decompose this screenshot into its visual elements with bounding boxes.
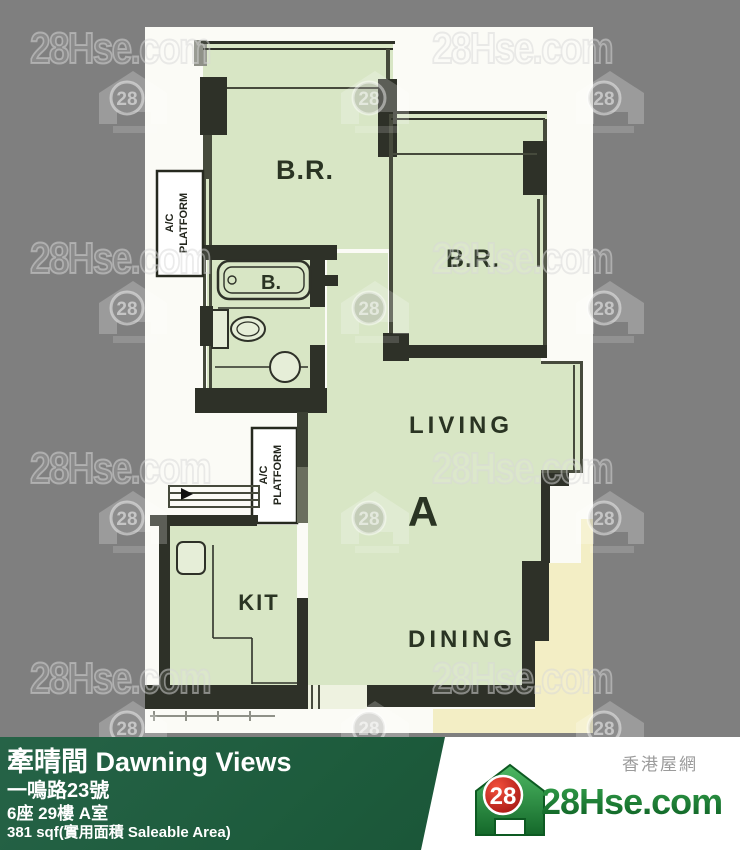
br2-right-window — [544, 199, 547, 267]
svg-text:28: 28 — [593, 719, 614, 737]
svg-text:28: 28 — [116, 89, 137, 110]
kitchen-sink — [177, 542, 205, 574]
unit-letter-label: A — [408, 488, 438, 535]
br2-interior-line — [393, 153, 537, 155]
br2-right-wall-block — [523, 141, 547, 195]
bath-right-wall-lower — [310, 345, 325, 390]
saleable-area: 381 sqf(實用面積 Saleable Area) — [7, 821, 231, 842]
ac-platform-2-label-line1: A/C — [258, 465, 270, 484]
brand-badge-number: 28 — [490, 783, 517, 810]
svg-text:28: 28 — [116, 509, 137, 530]
toilet-tank — [212, 310, 228, 348]
bedroom2-label: B.R. — [446, 245, 500, 273]
svg-text:28: 28 — [116, 719, 137, 737]
bath-left-window — [209, 260, 212, 306]
bath-left-window — [203, 346, 206, 388]
entrance-gap — [308, 685, 367, 709]
brand-block: 香港屋網 28 28Hse.com — [455, 737, 740, 850]
svg-text:28: 28 — [116, 299, 137, 320]
svg-text:28: 28 — [593, 89, 614, 110]
dining-right-wall — [522, 561, 549, 641]
entrance-door-line — [318, 685, 320, 709]
entrance-door-line — [311, 685, 313, 709]
wash-basin — [270, 352, 300, 382]
br2-left-wall — [389, 111, 393, 353]
bay-window-area — [541, 361, 583, 473]
living-label: LIVING — [409, 412, 513, 439]
brand-site-name: 28Hse.com — [541, 781, 722, 823]
bedroom1-label: B.R. — [276, 155, 334, 185]
living-right-wall — [541, 473, 550, 563]
kitchen-top-wall — [150, 517, 257, 526]
hall-wall-hatch — [297, 412, 308, 467]
br1-window-line — [201, 41, 395, 44]
ac-platform-1-label-line1: A/C — [164, 213, 176, 232]
brand-chinese-name: 香港屋網 — [622, 750, 698, 775]
br-divider-wall — [386, 49, 390, 81]
bottom-wall-right — [367, 685, 535, 707]
br2-right-window — [537, 199, 540, 267]
br1-window-line — [203, 48, 393, 50]
bedroom1-area — [203, 43, 393, 249]
hall-wall-hatch-light — [297, 467, 308, 523]
floorplan-page: { "watermark": { "text": "28Hse.com", "b… — [0, 0, 740, 850]
bath-right-wall — [310, 245, 325, 307]
floor-plan: B.R. B.R. LIVING A DINING KIT B. A/C PLA… — [145, 27, 593, 733]
br1-left-wall — [203, 135, 212, 179]
brand-house-28-icon: 28 — [473, 761, 547, 839]
info-bar: 牽晴間 Dawning Views 一鳴路23號 6座 29樓 A室 381 s… — [0, 737, 740, 850]
br1-left-window — [209, 179, 212, 245]
br2-window-line — [389, 111, 547, 114]
ac-platform-1-label-line2: PLATFORM — [178, 193, 190, 253]
bath-bottom-wall — [195, 388, 327, 413]
br1-left-wall-block — [200, 77, 227, 135]
bath-left-window — [209, 346, 212, 388]
bath-door-stub — [325, 275, 338, 286]
svg-text:28: 28 — [593, 509, 614, 530]
floor-plan-sheet: B.R. B.R. LIVING A DINING KIT B. A/C PLA… — [145, 27, 593, 733]
kitchen-label: KIT — [238, 590, 279, 615]
dining-label: DINING — [408, 626, 516, 653]
br1-interior-line — [227, 87, 387, 89]
kitchen-left-wall — [159, 526, 170, 685]
br2-bottom-wall — [403, 345, 547, 358]
kitchen-right-wall — [297, 598, 308, 685]
toilet-bowl — [231, 317, 265, 341]
svg-text:28: 28 — [593, 299, 614, 320]
bath-label: B. — [261, 272, 281, 294]
dining-right-wall-lower — [522, 641, 535, 701]
ac-platform-2-label-line2: PLATFORM — [272, 445, 284, 505]
bottom-wall-left — [145, 685, 308, 709]
br2-bottom-wall-block — [383, 333, 409, 361]
br2-window-line — [391, 118, 545, 120]
